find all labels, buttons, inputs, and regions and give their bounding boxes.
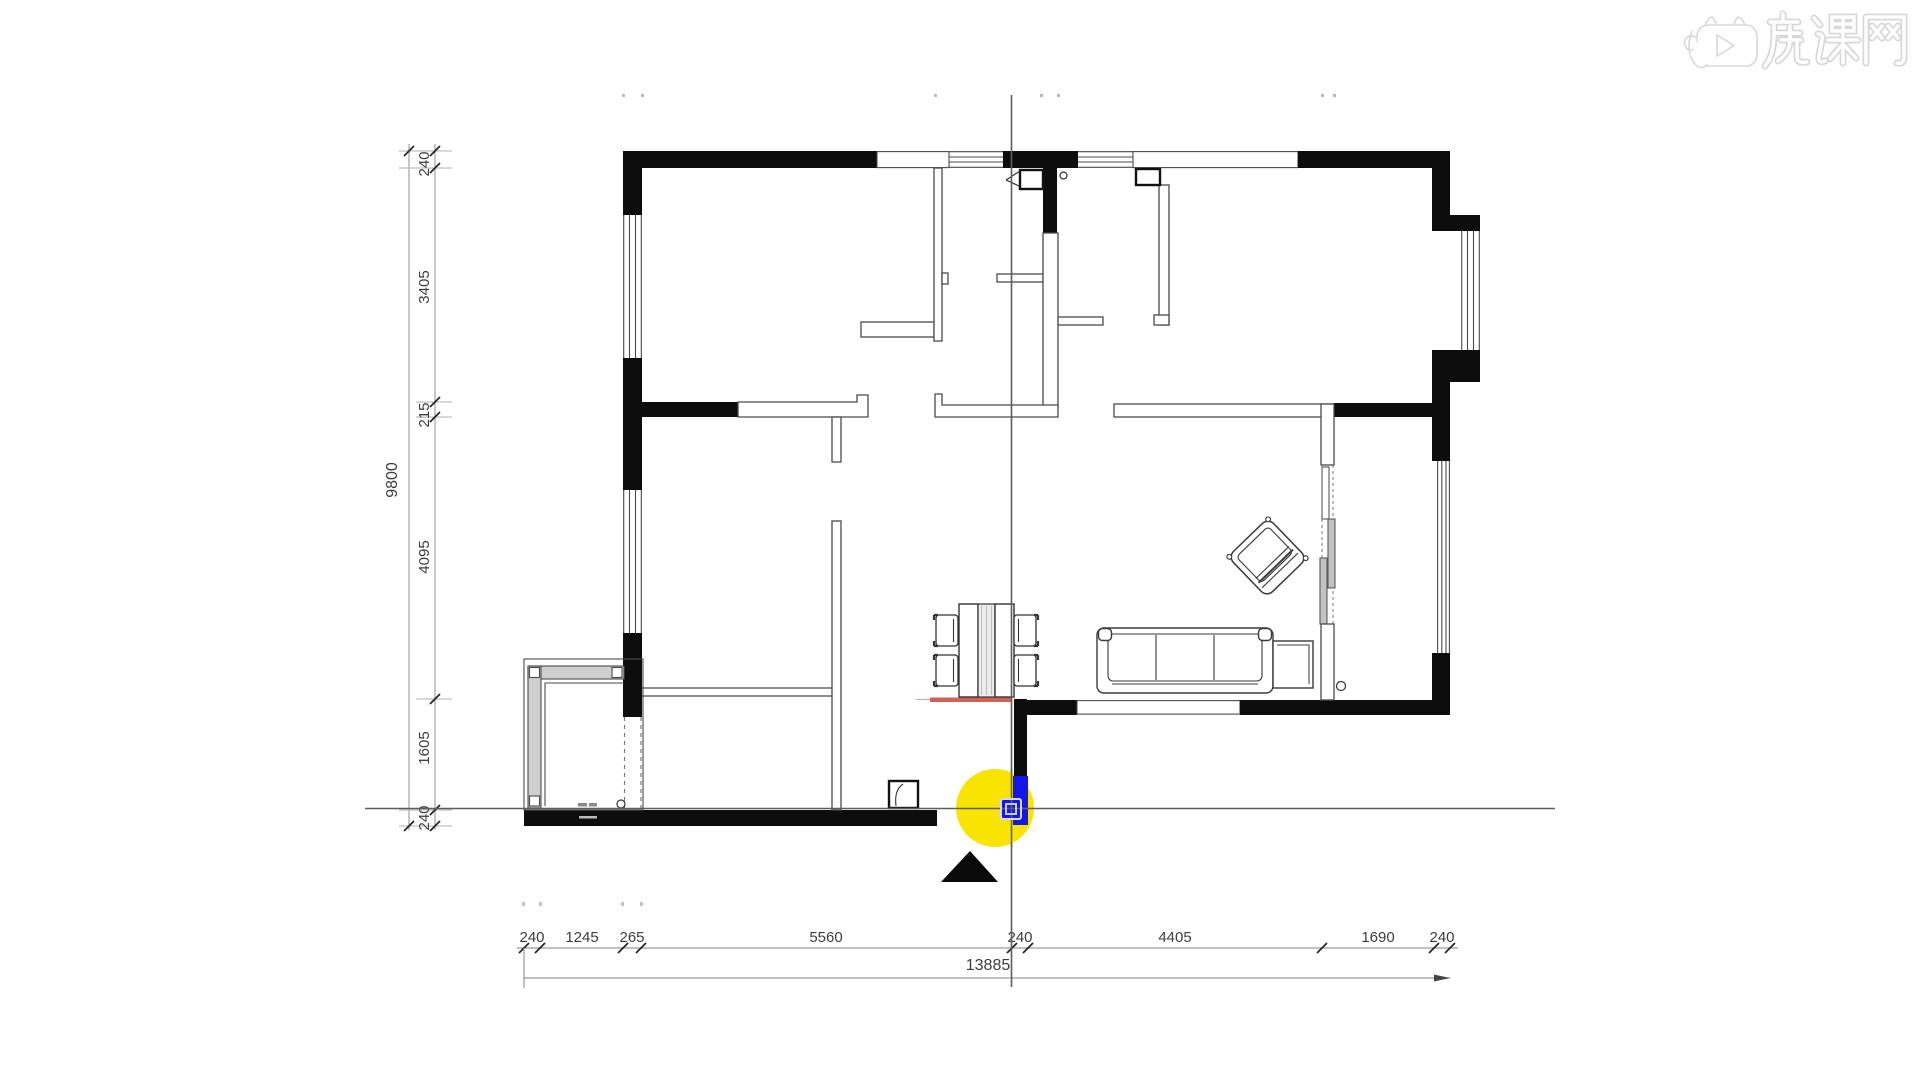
svg-text:5560: 5560 xyxy=(809,929,842,946)
svg-text:240: 240 xyxy=(519,929,544,946)
svg-text:240: 240 xyxy=(416,151,433,176)
svg-text:1245: 1245 xyxy=(565,929,598,946)
svg-text:3405: 3405 xyxy=(416,270,433,303)
svg-text:13885: 13885 xyxy=(966,957,1011,974)
svg-text:265: 265 xyxy=(619,929,644,946)
svg-text:9800: 9800 xyxy=(384,462,401,498)
svg-text:4095: 4095 xyxy=(416,540,433,573)
svg-text:240: 240 xyxy=(1429,929,1454,946)
svg-text:4405: 4405 xyxy=(1158,929,1191,946)
svg-text:215: 215 xyxy=(416,402,433,427)
svg-text:1605: 1605 xyxy=(416,731,433,764)
svg-text:1690: 1690 xyxy=(1361,929,1394,946)
